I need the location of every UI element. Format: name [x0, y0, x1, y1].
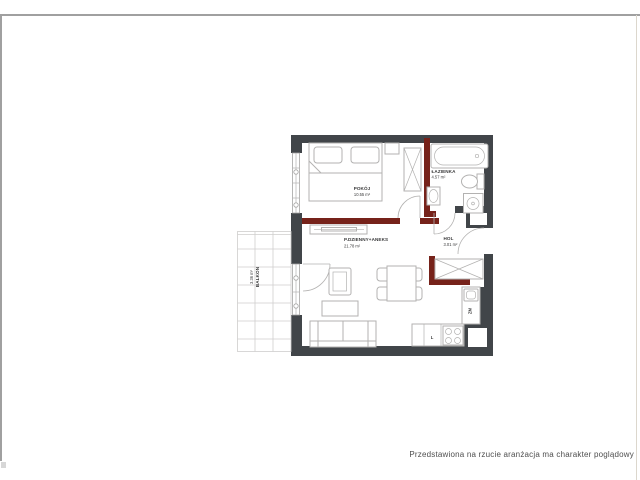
balcony-outline: [238, 232, 292, 352]
pillow: [351, 147, 379, 163]
fridge-niche: [468, 328, 487, 347]
hall-furniture: [435, 259, 483, 279]
room-area-hol: 3.01 m²: [444, 242, 459, 247]
room-label-dzienny: P.DZIENNY+ANEKS: [344, 237, 388, 242]
coffee-table: [322, 301, 358, 316]
wall-right-kitchen: [480, 287, 493, 324]
window-handle-icon: [294, 203, 298, 207]
entrance-door-arc: [458, 228, 484, 254]
window-handle-icon: [294, 304, 298, 308]
dishwasher-label: ZM: [468, 307, 473, 314]
balcony-door-arc: [303, 264, 330, 291]
room-label-hol: HOL: [444, 236, 454, 241]
washing-machine: [464, 194, 484, 214]
room-area-balkon: 3.36 m²: [249, 269, 254, 284]
dining-table: [387, 266, 416, 301]
living-furniture: [310, 225, 422, 347]
room-label-pokoj: POKÓJ: [354, 184, 371, 191]
entrance-door-leaf: [470, 213, 487, 225]
toilet: [462, 175, 478, 188]
wall-top: [291, 135, 493, 143]
accent-wall-hall-bottom: [429, 279, 470, 285]
wall-left-middle: [291, 213, 302, 264]
accent-wall-divider-end: [420, 218, 439, 224]
window-handle-icon: [294, 276, 298, 280]
wall-left-upper: [291, 135, 302, 153]
accent-wall-bedroom-divider: [302, 218, 400, 224]
balcony: [238, 232, 292, 352]
toilet-tank: [477, 174, 484, 189]
nightstand: [385, 143, 399, 154]
floor-plan: L ZM POKÓJ 10.55 m² P.DZIENNY+ANEKS 21.7…: [0, 0, 640, 480]
room-label-balkon: BALKON: [255, 266, 260, 287]
wall-right-hall: [484, 254, 493, 287]
room-area-lazienka: 4.57 m²: [432, 175, 447, 180]
fridge-label: L: [431, 335, 434, 340]
bedroom-door-arc: [398, 196, 420, 218]
pillow: [314, 147, 342, 163]
disclaimer-text: Przedstawiona na rzucie aranżacja ma cha…: [409, 450, 634, 459]
room-label-lazienka: ŁAZIENKA: [432, 169, 457, 174]
room-area-dzienny: 21.78 m²: [344, 244, 361, 249]
window-handle-icon: [294, 170, 298, 174]
room-area-pokoj: 10.55 m²: [354, 192, 371, 197]
